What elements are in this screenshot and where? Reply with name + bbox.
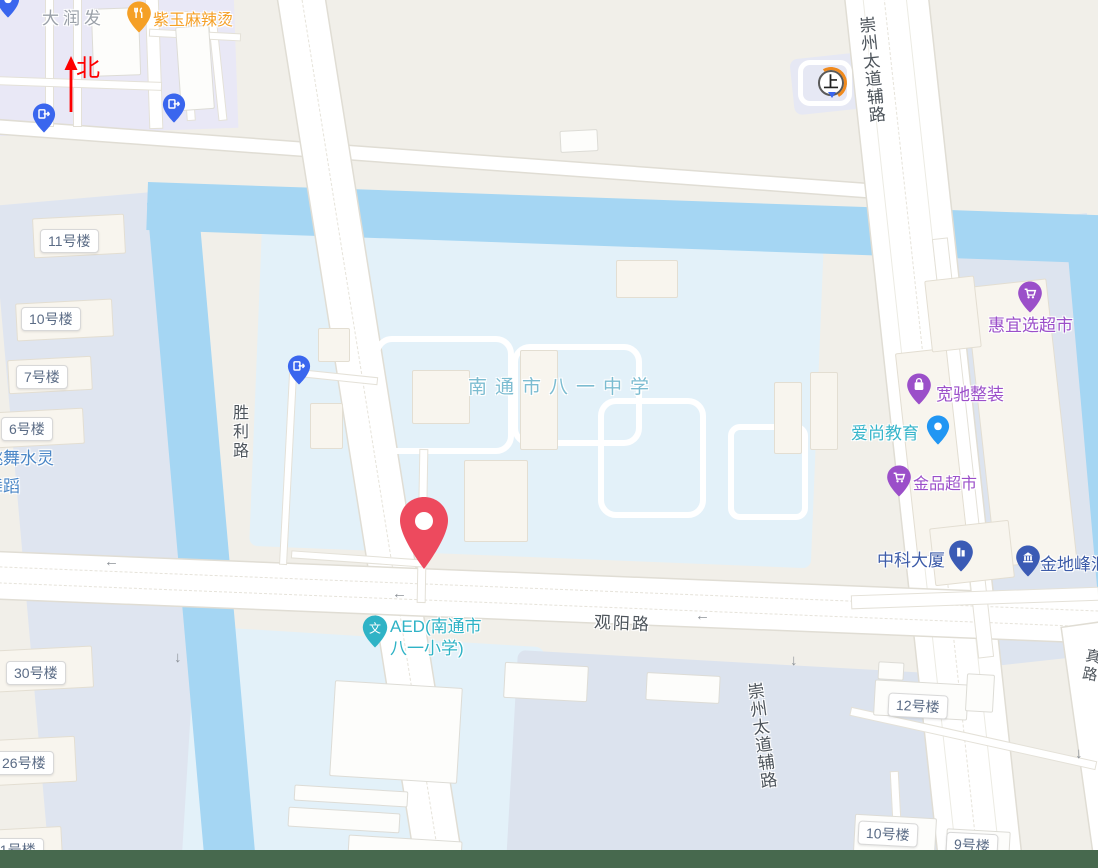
road-label-guanyang: 观阳路 bbox=[593, 608, 651, 635]
poi-label-jinpin-market[interactable]: 金品超市 bbox=[913, 470, 977, 494]
food-pin-icon bbox=[126, 20, 152, 37]
one-way-arrow-icon: ← bbox=[104, 554, 119, 569]
bag-pin-icon bbox=[906, 392, 932, 409]
building-label-pill: 26号楼 bbox=[0, 751, 54, 775]
building bbox=[329, 680, 463, 784]
poi-label-kuanchi[interactable]: 宽驰整装 bbox=[936, 380, 1004, 405]
one-way-arrow-icon: ← bbox=[392, 586, 407, 601]
building-label-pill: 7号楼 bbox=[16, 365, 68, 389]
building bbox=[464, 460, 528, 542]
one-way-arrow-icon: ← bbox=[695, 608, 710, 623]
poi-pin-office[interactable] bbox=[948, 540, 974, 577]
dot-pin-icon bbox=[0, 5, 20, 22]
building bbox=[878, 661, 905, 680]
building bbox=[616, 260, 678, 298]
cart-pin-icon bbox=[886, 484, 912, 501]
poi-label-aishang-education[interactable]: 爱尚教育 bbox=[851, 419, 919, 444]
ramp-entrance-glyph: 上 bbox=[823, 74, 838, 91]
building bbox=[503, 662, 589, 702]
marker-pin-icon bbox=[398, 557, 450, 574]
education-pin-icon: 文 bbox=[362, 635, 388, 652]
poi-pin-shop[interactable] bbox=[906, 373, 932, 410]
building-label-pill: 6号楼 bbox=[1, 417, 53, 441]
building bbox=[310, 403, 343, 449]
poi-label-zhongke-tower[interactable]: 中科大厦 bbox=[877, 546, 945, 571]
building-pin-icon bbox=[948, 559, 974, 576]
poi-pin-supermarket[interactable] bbox=[886, 465, 912, 502]
poi-pin-entrance[interactable] bbox=[162, 93, 186, 128]
building bbox=[965, 673, 995, 713]
building bbox=[559, 129, 598, 153]
cart-pin-icon bbox=[1017, 300, 1043, 317]
road-label-shengli: 胜利路 bbox=[226, 404, 250, 461]
building bbox=[412, 370, 470, 424]
poi-label-ziyu-malatang[interactable]: 紫玉麻辣烫 bbox=[153, 6, 233, 30]
poi-label-aed-line2[interactable]: 八一小学) bbox=[390, 634, 464, 659]
map-canvas[interactable]: ← ← ← ↓ ↓ ↓ 胜利路 观阳路 崇州太道辅路 崇州太道辅路 真路 11号… bbox=[0, 0, 1098, 868]
ramp-entrance-icon[interactable]: 上 bbox=[818, 70, 844, 96]
building bbox=[924, 275, 982, 352]
poi-pin-entrance[interactable] bbox=[287, 355, 311, 390]
poi-pin-aed[interactable]: 文 bbox=[362, 615, 388, 653]
poi-pin-generic[interactable] bbox=[926, 415, 950, 450]
building bbox=[645, 672, 720, 704]
poi-label-school-bayi-middle[interactable]: 南通市八一中学 bbox=[468, 372, 657, 399]
one-way-arrow-icon: ↓ bbox=[1075, 746, 1083, 761]
one-way-arrow-icon: ↓ bbox=[174, 650, 182, 665]
one-way-arrow-icon: ↓ bbox=[790, 653, 798, 668]
north-label: 北 bbox=[76, 48, 100, 83]
poi-pin-entrance[interactable] bbox=[32, 103, 56, 138]
road-top-diagonal bbox=[0, 120, 892, 199]
bank-pin-icon bbox=[1015, 564, 1041, 581]
north-arrow-icon bbox=[62, 103, 82, 120]
poi-label-rt-mart[interactable]: 大润发 bbox=[42, 4, 105, 29]
poi-pin-supermarket[interactable] bbox=[1017, 281, 1043, 318]
building bbox=[774, 382, 802, 454]
location-marker[interactable] bbox=[398, 496, 450, 575]
poi-pin-bank[interactable] bbox=[1015, 545, 1041, 582]
poi-pin[interactable] bbox=[0, 0, 20, 23]
entrance-pin-icon bbox=[32, 120, 56, 137]
poi-pin-food[interactable] bbox=[126, 1, 152, 38]
poi-label-dance-studio-line1[interactable]: 桃舞水灵 bbox=[0, 444, 54, 469]
entrance-pin-icon bbox=[287, 372, 311, 389]
building bbox=[318, 328, 350, 362]
building bbox=[520, 350, 558, 450]
building-label-pill: 11号楼 bbox=[40, 229, 99, 253]
campus-loop-path bbox=[598, 398, 706, 518]
bottom-bar bbox=[0, 850, 1098, 868]
entrance-pin-icon bbox=[162, 110, 186, 127]
building-label-pill: 10号楼 bbox=[21, 307, 81, 331]
poi-label-jindi-fenghui[interactable]: 金地峰汇 bbox=[1040, 550, 1098, 575]
svg-text:文: 文 bbox=[369, 621, 381, 636]
poi-label-dance-studio-line2[interactable]: 舞蹈 bbox=[0, 472, 20, 497]
dot-pin-icon bbox=[926, 432, 950, 449]
building bbox=[810, 372, 838, 450]
building-label-pill: 10号楼 bbox=[857, 820, 918, 847]
building-label-pill: 30号楼 bbox=[6, 661, 66, 685]
building-label-pill: 12号楼 bbox=[887, 692, 948, 719]
